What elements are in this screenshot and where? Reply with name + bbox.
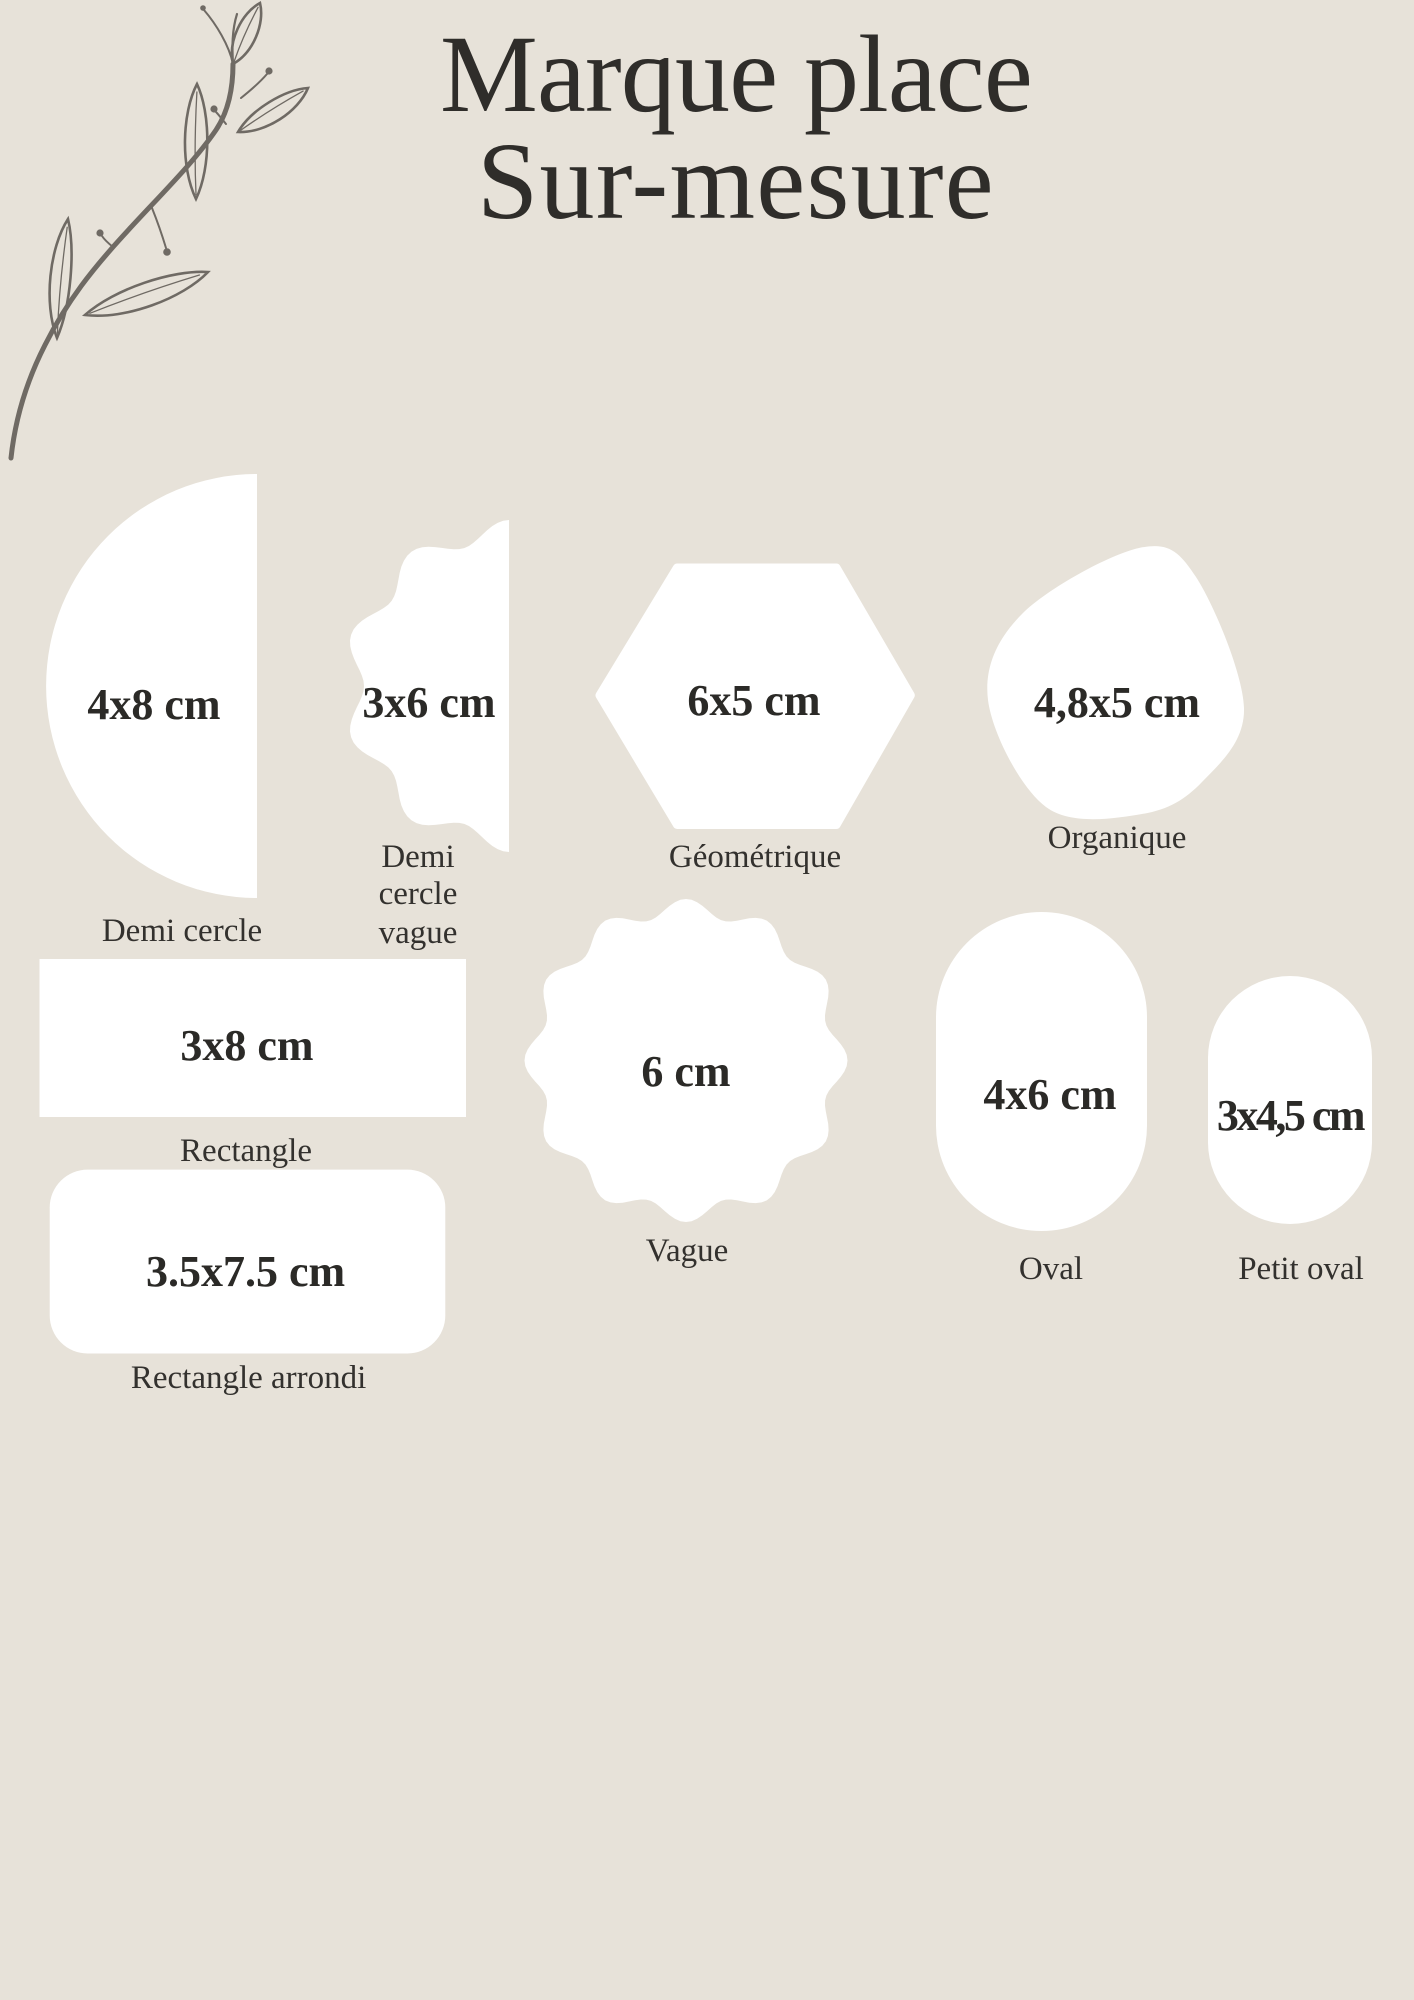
svg-text:Demi: Demi xyxy=(381,839,454,875)
svg-text:Sur-mesure: Sur-mesure xyxy=(477,120,995,242)
svg-text:Demi cercle: Demi cercle xyxy=(102,913,262,949)
svg-text:Rectangle arrondi: Rectangle arrondi xyxy=(131,1360,366,1396)
svg-text:4x8 cm: 4x8 cm xyxy=(87,680,220,729)
svg-text:6 cm: 6 cm xyxy=(641,1047,730,1096)
svg-text:Vague: Vague xyxy=(646,1233,728,1269)
svg-text:Oval: Oval xyxy=(1019,1251,1083,1287)
svg-text:3x4,5 cm: 3x4,5 cm xyxy=(1217,1091,1365,1140)
svg-text:vague: vague xyxy=(379,915,458,951)
svg-text:Géométrique: Géométrique xyxy=(669,839,841,875)
svg-text:Organique: Organique xyxy=(1048,820,1187,856)
svg-text:Rectangle: Rectangle xyxy=(180,1133,312,1169)
svg-text:3x8 cm: 3x8 cm xyxy=(180,1021,313,1070)
svg-text:6x5 cm: 6x5 cm xyxy=(687,676,820,725)
svg-text:4x6 cm: 4x6 cm xyxy=(983,1070,1116,1119)
svg-text:Petit oval: Petit oval xyxy=(1238,1251,1364,1287)
svg-text:4,8x5 cm: 4,8x5 cm xyxy=(1034,678,1200,727)
svg-text:3x6 cm: 3x6 cm xyxy=(362,678,495,727)
svg-text:cercle: cercle xyxy=(379,876,458,912)
svg-text:Marque place: Marque place xyxy=(440,13,1032,135)
svg-text:3.5x7.5 cm: 3.5x7.5 cm xyxy=(146,1247,345,1296)
